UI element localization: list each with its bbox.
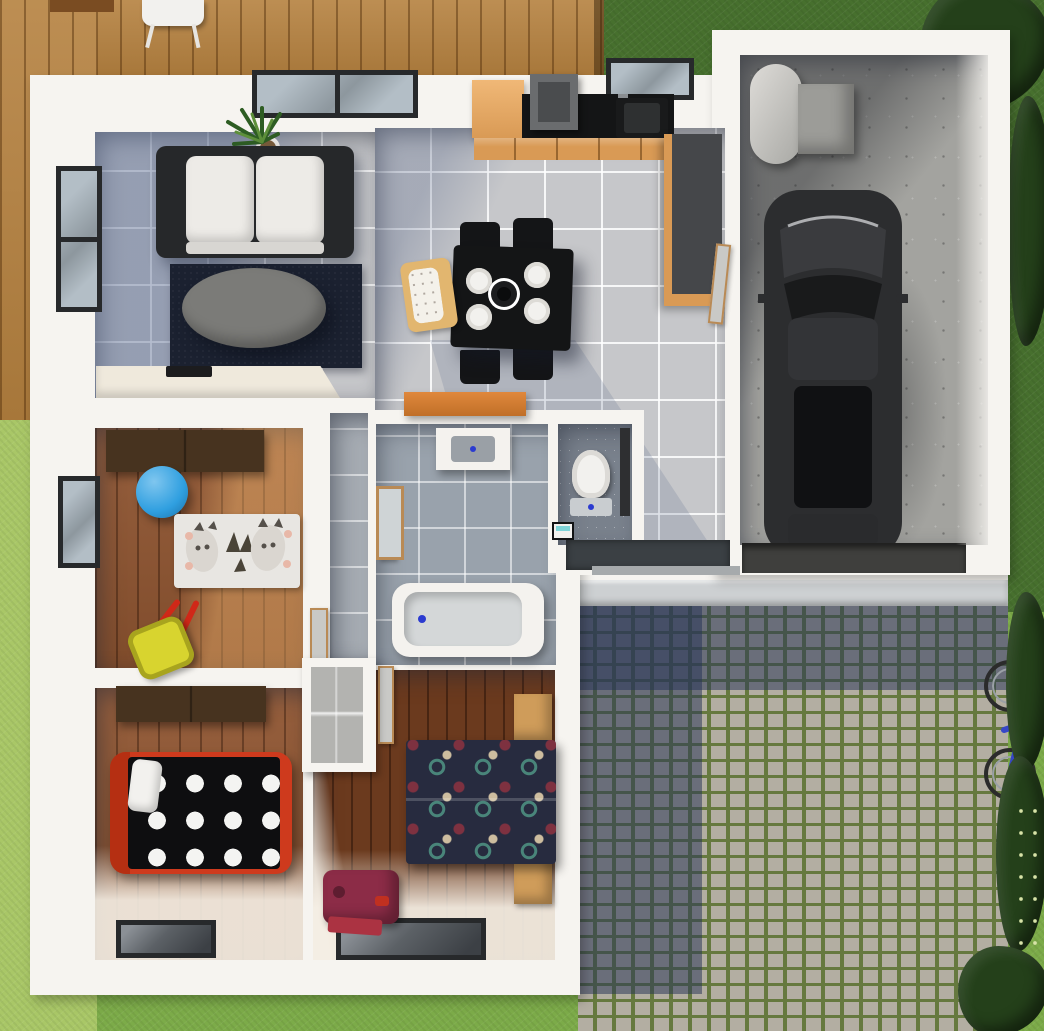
kitchen-sink [616, 98, 668, 138]
garage-threshold-ramp [742, 543, 966, 573]
car [758, 186, 908, 562]
faucet [618, 94, 628, 98]
wc-door [620, 428, 630, 516]
wc-washbasin [552, 522, 574, 540]
fridge [472, 80, 524, 138]
hedge-bottom-right [958, 946, 1044, 1031]
toy-wheelbarrow [130, 592, 210, 676]
high-chair [399, 257, 458, 333]
nursery-wardrobe [106, 430, 264, 472]
shower-mirror-panel [376, 486, 404, 560]
orange-sideboard [404, 392, 526, 416]
hedge-right-1 [1006, 592, 1044, 772]
deck-chair-leg [145, 24, 155, 48]
coffee-table [182, 268, 326, 348]
closet-nook [302, 658, 376, 772]
deck-edge-shadow [594, 0, 604, 78]
front-door [592, 566, 740, 575]
bedroom-master-door-leaf [378, 666, 394, 744]
sofa-seat-front [186, 242, 324, 254]
plate [466, 304, 492, 330]
floor-plan-render [0, 0, 1044, 1031]
bed-small-headboard [110, 752, 130, 874]
living-left-window [56, 166, 102, 312]
cooker-hood [530, 74, 578, 130]
kitchen-drawers [474, 138, 688, 160]
sofa-cushion [256, 156, 324, 244]
animal-rug [174, 514, 300, 588]
nursery-left-window [58, 476, 100, 568]
bathtub [392, 583, 544, 657]
tv-sideboard [96, 366, 340, 398]
water-heater [750, 64, 802, 164]
wall-wc-right [632, 423, 644, 549]
nightstand [514, 694, 552, 740]
driveway-cobblestone [578, 598, 1008, 1031]
sofa-cushion [186, 156, 254, 244]
porch-step [578, 580, 1008, 606]
dining-chair [460, 350, 500, 384]
serving-bowl [488, 278, 520, 310]
deck-chair-leg [192, 24, 201, 48]
bed-small [110, 752, 292, 874]
play-ball [136, 466, 188, 518]
bed-master [406, 740, 556, 864]
deck-table-edge [50, 0, 114, 12]
deck-chair-seat [142, 0, 204, 26]
hedge-top-right-2 [1008, 96, 1044, 346]
hedge-right-2 [996, 756, 1044, 952]
tv-device [166, 366, 212, 377]
dining-chair [513, 218, 553, 250]
wall-bathroom-left [368, 423, 376, 665]
deck-chair [140, 0, 208, 50]
sofa [156, 146, 354, 258]
toilet [572, 450, 610, 516]
bed-small-pillow [127, 758, 163, 813]
plate [524, 298, 550, 324]
nightstand [514, 860, 552, 904]
utility-box [798, 84, 854, 154]
vanity-sink [436, 428, 510, 470]
dining-chair [513, 346, 553, 380]
bedroom-small-wardrobe [116, 686, 266, 722]
plate [524, 262, 550, 288]
bedroom-small-window [116, 920, 216, 958]
